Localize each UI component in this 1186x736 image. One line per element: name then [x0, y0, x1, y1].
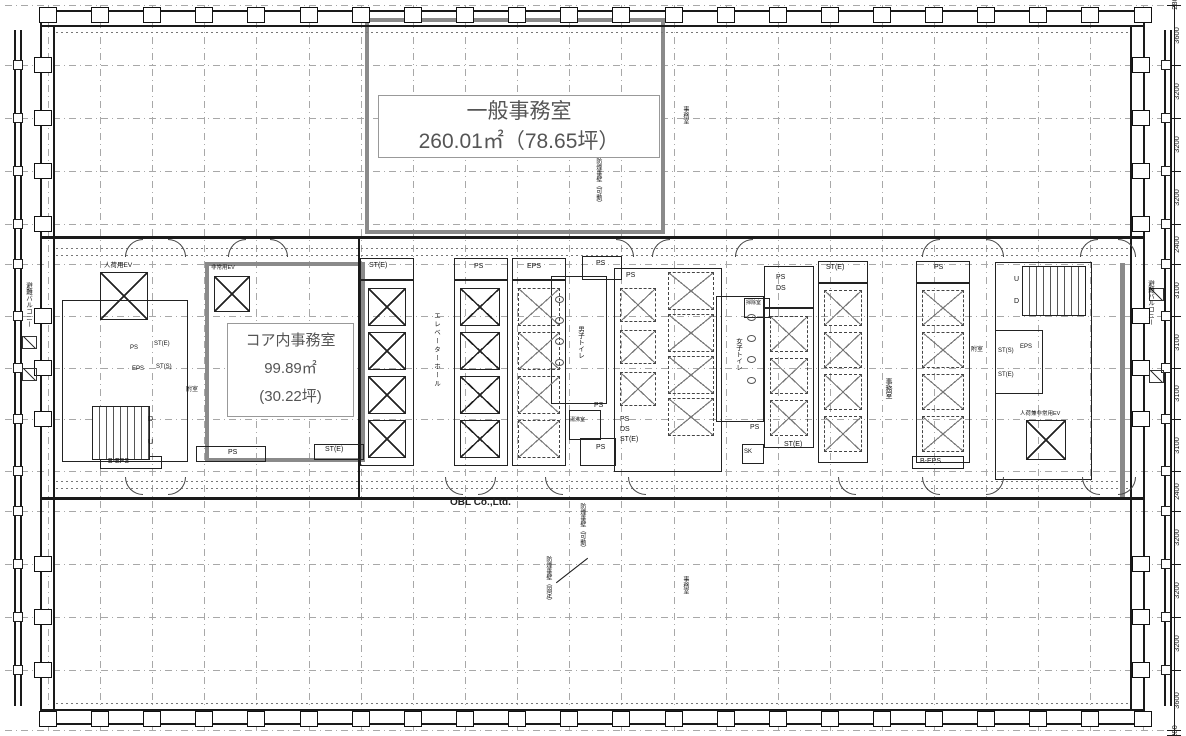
- column-mullion: [1029, 711, 1047, 727]
- door-swing: [228, 239, 246, 257]
- service-shaft: [668, 314, 714, 352]
- column-mullion: [1132, 662, 1150, 678]
- service-shaft: [620, 330, 656, 364]
- service-shaft: [518, 332, 560, 370]
- column-mullion: [456, 711, 474, 727]
- toilet-fixture: [747, 335, 756, 342]
- service-shaft: [824, 332, 862, 368]
- ceiling-line: [56, 32, 1130, 33]
- grid-line: [5, 511, 1183, 512]
- toilet-fixture: [555, 359, 564, 366]
- door-swing: [1082, 477, 1100, 495]
- column-mullion: [352, 7, 370, 23]
- column-mullion: [1132, 216, 1150, 232]
- shaft-label-ps: PS: [620, 416, 629, 424]
- toilet-fixture: [747, 377, 756, 384]
- column-mullion: [91, 711, 109, 727]
- shaft-label-sk: SK: [744, 449, 752, 456]
- column-mullion: [34, 163, 52, 179]
- shaft-label-ste: ST(E): [325, 446, 343, 454]
- column-mullion: [195, 711, 213, 727]
- shaft-label-ds: DS: [620, 426, 630, 434]
- office-label: 事務室: [884, 378, 892, 399]
- grid-line: [5, 617, 1183, 618]
- balcony-post: [13, 559, 23, 569]
- door-swing: [125, 477, 143, 495]
- wall: [40, 497, 1145, 500]
- column-mullion: [34, 556, 52, 572]
- column-mullion: [560, 7, 578, 23]
- column-mullion: [1132, 411, 1150, 427]
- column-mullion: [717, 7, 735, 23]
- service-shaft: [668, 356, 714, 394]
- balcony-post: [1161, 113, 1171, 123]
- dimension-label: 3600: [1172, 27, 1181, 44]
- service-shaft: [770, 400, 808, 436]
- tenant-boundary: [1120, 263, 1125, 497]
- column-mullion: [821, 711, 839, 727]
- ceiling-line: [56, 488, 1130, 489]
- column-mullion: [665, 711, 683, 727]
- dimension-label: 3600: [1172, 692, 1181, 709]
- column-mullion: [34, 57, 52, 73]
- leader-line: [556, 558, 588, 583]
- column-mullion: [769, 7, 787, 23]
- column-mullion: [873, 7, 891, 23]
- womens-toilet-label: 女子トイレ: [734, 338, 741, 371]
- column-mullion: [873, 711, 891, 727]
- shaft-label-ps: PS: [626, 272, 635, 280]
- shaft-label-ps: PS: [750, 424, 759, 432]
- balcony-post: [13, 259, 23, 269]
- column-mullion: [612, 711, 630, 727]
- balcony-post: [13, 113, 23, 123]
- service-shaft: [824, 290, 862, 326]
- shaft-label-ps: PS: [596, 444, 605, 452]
- door-swing: [445, 477, 463, 495]
- column-mullion: [977, 711, 995, 727]
- shaft-label-ds: DS: [776, 285, 786, 293]
- door-swing: [986, 477, 1004, 495]
- column-mullion: [560, 711, 578, 727]
- balcony-post: [1161, 559, 1171, 569]
- dimension-label: 3200: [1172, 83, 1181, 100]
- elevator-hall-label: エレベーターホール: [432, 312, 439, 389]
- balcony-post: [1161, 506, 1171, 516]
- column-mullion: [1132, 556, 1150, 572]
- grid-line: [5, 564, 1183, 565]
- column-mullion: [1081, 711, 1099, 727]
- elevator-shaft: [368, 376, 406, 414]
- cleaning-room-label: 掃除室: [746, 301, 761, 307]
- door-swing: [986, 239, 1004, 257]
- balcony-hatch: [22, 336, 37, 349]
- emergency-ev-label: 非常用EV: [211, 265, 235, 271]
- shaft-label-ps: PS: [596, 260, 605, 268]
- toilet-fixture: [747, 314, 756, 321]
- wall: [40, 25, 1145, 27]
- shaft-label-beps: B-EPS: [920, 458, 941, 466]
- service-shaft: [518, 288, 560, 326]
- dimension-label: 3200: [1172, 582, 1181, 599]
- column-mullion: [247, 711, 265, 727]
- column-mullion: [34, 110, 52, 126]
- elevator-shaft: [460, 376, 500, 414]
- column-mullion: [39, 711, 57, 727]
- elevator-shaft: [460, 288, 500, 326]
- core-office-area-tsubo: (30.22坪): [228, 383, 353, 411]
- service-shaft: [518, 376, 560, 414]
- column-mullion: [404, 711, 422, 727]
- column-mullion: [91, 7, 109, 23]
- column-mullion: [352, 711, 370, 727]
- shaft-label-eps: EPS: [132, 366, 144, 373]
- door-swing: [922, 239, 940, 257]
- mens-toilet-label: 男子トイレ: [576, 326, 583, 359]
- service-shaft: [668, 272, 714, 310]
- balcony-post: [1161, 259, 1171, 269]
- wall: [40, 236, 1145, 239]
- balcony-post: [13, 506, 23, 516]
- balcony-post: [1161, 665, 1171, 675]
- smoke-wall-movable-note-bottom: 防煙垂壁（可動）: [578, 503, 585, 551]
- smoke-wall-movable-note-top: 防煙垂壁（可動）: [594, 158, 601, 206]
- dimension-label: 3100: [1172, 385, 1181, 402]
- freight-emergency-ev-label: 人荷兼非常用EV: [1020, 411, 1060, 417]
- service-shaft: [518, 420, 560, 458]
- shaft-label-beps: B-EPS: [108, 458, 129, 466]
- floor-plan: 一般事務室 260.01㎡（78.65坪） コア内事務室 99.89㎡ (30.…: [0, 0, 1186, 736]
- column-mullion: [300, 7, 318, 23]
- toilet-fixture: [555, 296, 564, 303]
- column-mullion: [1132, 609, 1150, 625]
- balcony-hatch: [22, 368, 37, 381]
- stair-down-label: D: [1014, 298, 1019, 306]
- column-mullion: [1134, 711, 1152, 727]
- door-swing: [1118, 239, 1136, 257]
- balcony-post: [1161, 414, 1171, 424]
- elevator-shaft: [368, 332, 406, 370]
- door-swing: [838, 477, 856, 495]
- column-mullion: [925, 7, 943, 23]
- balcony-post: [1161, 612, 1171, 622]
- stair-down-label: D: [148, 416, 153, 424]
- shaft-label-ste: ST(E): [784, 441, 802, 449]
- door-swing: [1080, 239, 1098, 257]
- column-mullion: [1029, 7, 1047, 23]
- elevator-shaft: [214, 276, 250, 312]
- door-swing: [616, 239, 634, 257]
- dimension-label: 3200: [1172, 136, 1181, 153]
- shaft-label-sts: ST(S): [998, 348, 1014, 355]
- elevator-shaft: [368, 288, 406, 326]
- column-mullion: [404, 7, 422, 23]
- door-swing: [270, 239, 288, 257]
- service-shaft: [922, 332, 964, 368]
- shaft-label-ps: PS: [130, 345, 138, 352]
- elevator-shaft: [460, 332, 500, 370]
- shaft-label-ps: PS: [474, 263, 483, 271]
- column-mullion: [143, 7, 161, 23]
- column-mullion: [34, 662, 52, 678]
- column-mullion: [1134, 7, 1152, 23]
- column-mullion: [34, 308, 52, 324]
- evac-balcony-left-label: 避難バルコニー: [24, 282, 31, 328]
- column-mullion: [665, 7, 683, 23]
- service-shaft: [824, 374, 862, 410]
- column-mullion: [1132, 110, 1150, 126]
- shaft-label-eps: EPS: [1020, 344, 1032, 351]
- column-mullion: [717, 711, 735, 727]
- shaft-label-ste: ST(E): [620, 436, 638, 444]
- evac-balcony-right-label: 避難バルコニー: [1146, 280, 1153, 326]
- elevator-shaft: [460, 420, 500, 458]
- door-swing: [922, 477, 940, 495]
- door-swing: [545, 477, 563, 495]
- column-mullion: [925, 711, 943, 727]
- stairs: [92, 406, 150, 460]
- shaft-label-sts: ST(S): [156, 364, 172, 371]
- column-mullion: [195, 7, 213, 23]
- door-swing: [735, 239, 753, 257]
- elevator-shaft: [368, 420, 406, 458]
- column-mullion: [821, 7, 839, 23]
- core-office-name: コア内事務室: [228, 327, 353, 355]
- column-mullion: [456, 7, 474, 23]
- toilet-fixture: [555, 317, 564, 324]
- balcony-hatch: [1149, 370, 1164, 383]
- column-mullion: [1081, 7, 1099, 23]
- core-office-label: コア内事務室 99.89㎡ (30.22坪): [227, 323, 354, 417]
- balcony-post: [1161, 166, 1171, 176]
- column-mullion: [34, 609, 52, 625]
- dimension-label: 3200: [1172, 529, 1181, 546]
- shaft-label-eps: EPS: [527, 263, 541, 271]
- office-note-bottom: 事務室: [681, 576, 688, 594]
- dimension-label: 2400: [1172, 236, 1181, 253]
- door-swing: [478, 477, 496, 495]
- ceiling-line: [56, 248, 1130, 249]
- column-mullion: [508, 7, 526, 23]
- shaft-label-ps: PS: [934, 264, 943, 272]
- column-mullion: [34, 216, 52, 232]
- balcony-post: [1161, 466, 1171, 476]
- column-mullion: [300, 711, 318, 727]
- balcony-post: [13, 612, 23, 622]
- dimension-label: 280: [1170, 0, 1179, 10]
- dimension-label: 3200: [1172, 635, 1181, 652]
- elevator-shaft: [100, 272, 148, 320]
- column-mullion: [1132, 360, 1150, 376]
- grid-line: [5, 5, 1183, 6]
- toilet-fixture: [747, 356, 756, 363]
- balcony-post: [13, 219, 23, 229]
- anteroom-label: 附室: [971, 347, 983, 354]
- freight-ev-label: 人荷用EV: [104, 262, 132, 269]
- column-mullion: [508, 711, 526, 727]
- dimension-label: 280: [1170, 725, 1179, 736]
- wall: [53, 25, 55, 710]
- grid-line: [5, 670, 1183, 671]
- anteroom-label: 附室: [186, 387, 198, 394]
- service-shaft: [922, 416, 964, 452]
- balcony-post: [13, 665, 23, 675]
- shaft-label-ps: PS: [594, 402, 603, 410]
- balcony-post: [13, 414, 23, 424]
- service-shaft: [620, 372, 656, 406]
- column-mullion: [1132, 163, 1150, 179]
- balcony-post: [13, 466, 23, 476]
- elevator-shaft: [1026, 420, 1066, 460]
- column-mullion: [34, 411, 52, 427]
- balcony-post: [1161, 219, 1171, 229]
- room-outline: [995, 330, 1043, 394]
- smoke-wall-fixed-note: 防煙垂壁（固定）: [544, 556, 551, 604]
- office-note-top: 事務室: [681, 106, 688, 124]
- balcony-post: [1161, 60, 1171, 70]
- service-shaft: [770, 358, 808, 394]
- balcony-post: [13, 60, 23, 70]
- dimension-label: 2400: [1172, 483, 1181, 500]
- door-swing: [652, 239, 670, 257]
- balcony-post: [1161, 311, 1171, 321]
- stair-up-label: U: [148, 439, 153, 447]
- ceiling-line: [56, 481, 1130, 482]
- door-swing: [628, 477, 646, 495]
- column-mullion: [769, 711, 787, 727]
- general-office-label: 一般事務室 260.01㎡（78.65坪）: [378, 95, 660, 158]
- service-shaft: [824, 416, 862, 452]
- balcony-post: [13, 311, 23, 321]
- door-swing: [125, 239, 143, 257]
- shaft-label-ps: PS: [776, 274, 785, 282]
- shaft-label-ste: ST(E): [369, 262, 387, 270]
- door-swing: [168, 239, 186, 257]
- column-mullion: [247, 7, 265, 23]
- column-mullion: [143, 711, 161, 727]
- shaft-label-ste: ST(E): [998, 372, 1014, 379]
- balcony-post: [13, 166, 23, 176]
- stair-up-label: U: [1014, 276, 1019, 284]
- core-office-area-m2: 99.89㎡: [228, 355, 353, 383]
- dimension-label: 3200: [1172, 189, 1181, 206]
- service-shaft: [668, 398, 714, 436]
- service-shaft: [770, 316, 808, 352]
- room-outline: [764, 266, 814, 308]
- column-mullion: [39, 7, 57, 23]
- service-shaft: [620, 288, 656, 322]
- stairs: [1022, 266, 1086, 316]
- general-office-name: 一般事務室: [379, 97, 659, 127]
- dimension-label: 3100: [1172, 334, 1181, 351]
- dimension-label: 3100: [1172, 282, 1181, 299]
- door-swing: [1118, 477, 1136, 495]
- watermark: OBL Co.,Ltd.: [450, 497, 511, 509]
- ceiling-line: [56, 703, 1130, 704]
- door-swing: [168, 477, 186, 495]
- column-mullion: [977, 7, 995, 23]
- dimension-line: [1174, 5, 1175, 735]
- service-shaft: [922, 290, 964, 326]
- general-office-area: 260.01㎡（78.65坪）: [379, 127, 659, 157]
- dimension-label: 3100: [1172, 437, 1181, 454]
- room-outline: [569, 410, 601, 440]
- service-shaft: [922, 374, 964, 410]
- toilet-fixture: [555, 338, 564, 345]
- column-mullion: [1132, 57, 1150, 73]
- grid-line: [5, 730, 1183, 731]
- shaft-label-ste: ST(E): [154, 341, 170, 348]
- kitchenette-label: 湯沸室: [570, 418, 585, 424]
- shaft-label-ste: ST(E): [826, 264, 844, 272]
- column-mullion: [612, 7, 630, 23]
- shaft-label-ps: PS: [228, 449, 237, 457]
